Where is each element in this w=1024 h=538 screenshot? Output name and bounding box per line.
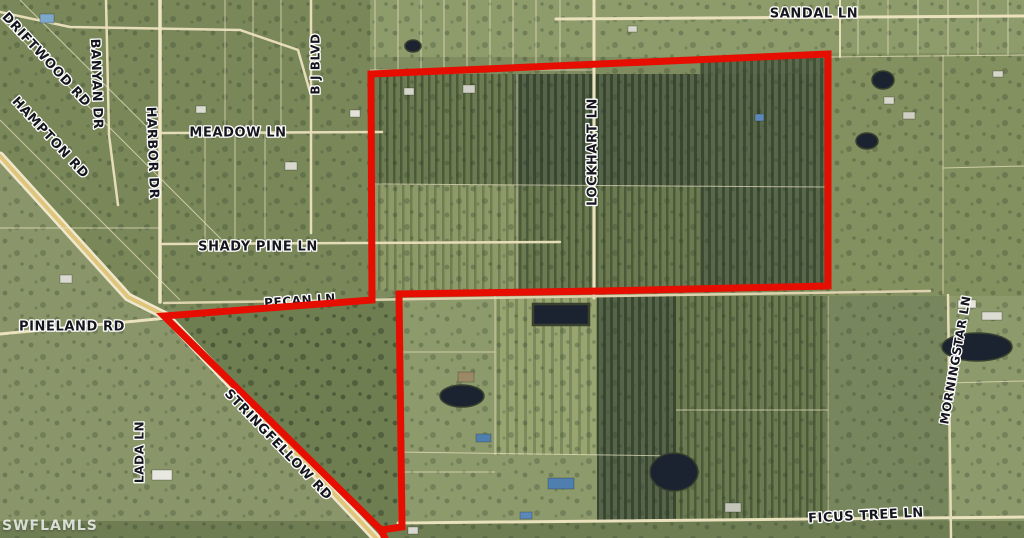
building bbox=[458, 372, 474, 382]
building bbox=[350, 110, 360, 117]
building bbox=[884, 97, 894, 104]
building bbox=[520, 512, 532, 519]
street-label-shady-pine-ln: SHADY PINE LN bbox=[198, 240, 318, 255]
pond bbox=[856, 133, 878, 149]
mls-watermark: SWFLAMLS bbox=[2, 518, 98, 534]
terrain-layer bbox=[0, 0, 1024, 538]
building bbox=[725, 503, 741, 512]
building bbox=[152, 470, 172, 480]
building bbox=[196, 106, 206, 113]
building bbox=[755, 114, 764, 121]
aerial-map-screenshot: PECAN LN DRIFTWOOD RDBANYAN DRHAMPTON RD… bbox=[0, 0, 1024, 538]
street-label-meadow-ln: MEADOW LN bbox=[189, 126, 286, 141]
building bbox=[60, 275, 72, 283]
building bbox=[40, 14, 54, 23]
street-label-sandal-ln: SANDAL LN bbox=[770, 7, 859, 22]
pond bbox=[650, 453, 698, 491]
street-label-pineland-rd: PINELAND RD bbox=[19, 320, 125, 335]
aerial-map-image: PECAN LN DRIFTWOOD RDBANYAN DRHAMPTON RD… bbox=[0, 0, 1024, 538]
street-label-lada-ln: LADA LN bbox=[133, 421, 147, 483]
building bbox=[404, 88, 414, 95]
building bbox=[628, 26, 637, 32]
pond bbox=[533, 304, 589, 325]
building bbox=[285, 162, 297, 170]
pond bbox=[440, 385, 484, 407]
building bbox=[993, 71, 1003, 77]
building bbox=[548, 478, 574, 489]
pond bbox=[405, 40, 421, 52]
street-label-lockhart-ln: LOCKHART LN bbox=[586, 98, 601, 206]
building bbox=[982, 312, 1002, 320]
building bbox=[903, 112, 915, 119]
building bbox=[408, 527, 418, 534]
pond bbox=[872, 71, 894, 89]
street-label-banyan-dr: BANYAN DR bbox=[87, 38, 105, 129]
building bbox=[463, 85, 475, 93]
street-label-b-j-blvd: B J BLVD bbox=[309, 33, 323, 94]
building bbox=[476, 434, 491, 442]
